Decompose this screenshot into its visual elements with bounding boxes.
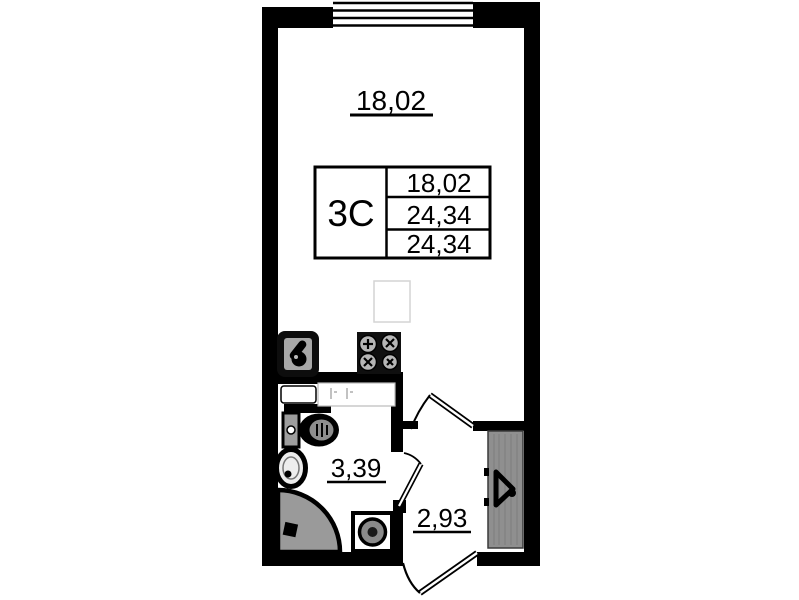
wardrobe-nub-top [484, 468, 489, 476]
wall-hall-top-right [473, 421, 526, 431]
shower-drain [283, 522, 298, 537]
main-room-label: 18,02 [350, 85, 433, 116]
bathroom-door-swing [399, 453, 421, 506]
unit-type-text: 3С [327, 193, 374, 234]
shower-tray-icon [278, 490, 340, 552]
washing-machine-icon [353, 513, 392, 551]
room-door-swing [411, 395, 473, 429]
stove-burners-icon [357, 332, 401, 374]
bathroom-label: 3,39 [327, 453, 386, 483]
bathroom-door-arc [404, 453, 421, 464]
kitchen-sink-icon [277, 331, 319, 377]
kitchen-sink-faucet-base [292, 352, 307, 367]
wall-top-left [262, 7, 333, 28]
hallway-area-text: 2,93 [417, 503, 468, 533]
bathroom-cabinet-outline [318, 383, 395, 406]
toilet-icon [283, 413, 339, 447]
hanger-hook [508, 489, 516, 497]
wardrobe-hanger-icon [484, 431, 523, 548]
kitchen-sink-faucet-dot [294, 355, 298, 359]
shower-tray [278, 490, 340, 552]
bathroom-area-text: 3,39 [331, 453, 382, 483]
wardrobe-nub-bottom [484, 498, 489, 506]
main-room-area-text: 18,02 [356, 85, 426, 116]
wall-bottom-right [477, 552, 540, 566]
spec-row-3: 24,34 [406, 229, 471, 259]
washbasin-icon [277, 450, 306, 487]
room-door-arc [411, 395, 430, 429]
wall-left [262, 7, 278, 566]
spec-table: 3С 18,02 24,34 24,34 [315, 167, 490, 259]
spec-row-2: 24,34 [406, 200, 471, 230]
fridge-outline-icon [374, 281, 410, 322]
bathroom-shelf [281, 386, 316, 403]
wall-top-right [473, 2, 540, 28]
entrance-door-swing [403, 553, 477, 593]
toilet-tank-button [287, 426, 295, 434]
hallway-label: 2,93 [413, 503, 471, 533]
floor-plan-canvas: 18,02 3С 18,02 24,34 24,34 [0, 0, 799, 600]
floor-plan: 18,02 3С 18,02 24,34 24,34 [0, 0, 799, 600]
wall-right [524, 28, 540, 566]
entrance-door-arc [403, 563, 420, 593]
spec-row-1: 18,02 [406, 168, 471, 198]
window-symbol [333, 3, 473, 26]
